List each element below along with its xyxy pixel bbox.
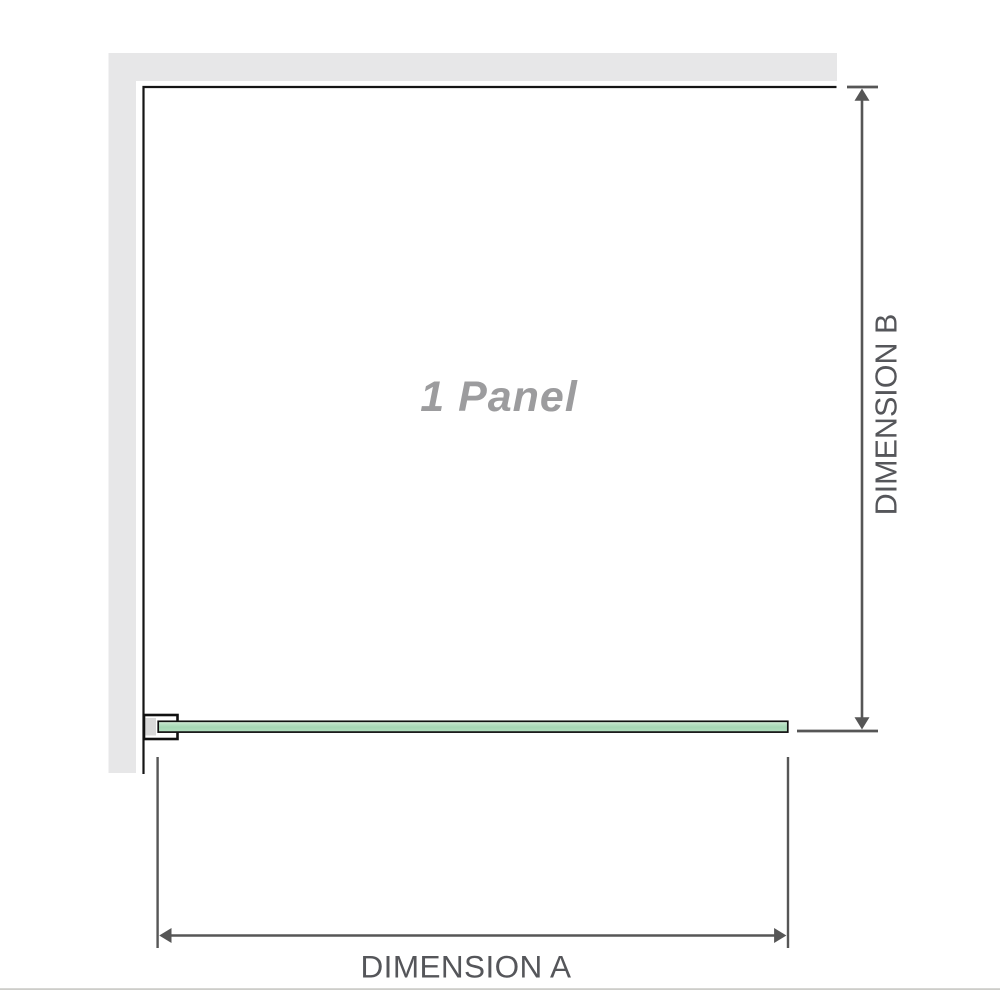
svg-text:DIMENSION B: DIMENSION B [870,314,904,516]
svg-text:DIMENSION A: DIMENSION A [361,949,572,985]
svg-text:1 Panel: 1 Panel [420,373,578,421]
